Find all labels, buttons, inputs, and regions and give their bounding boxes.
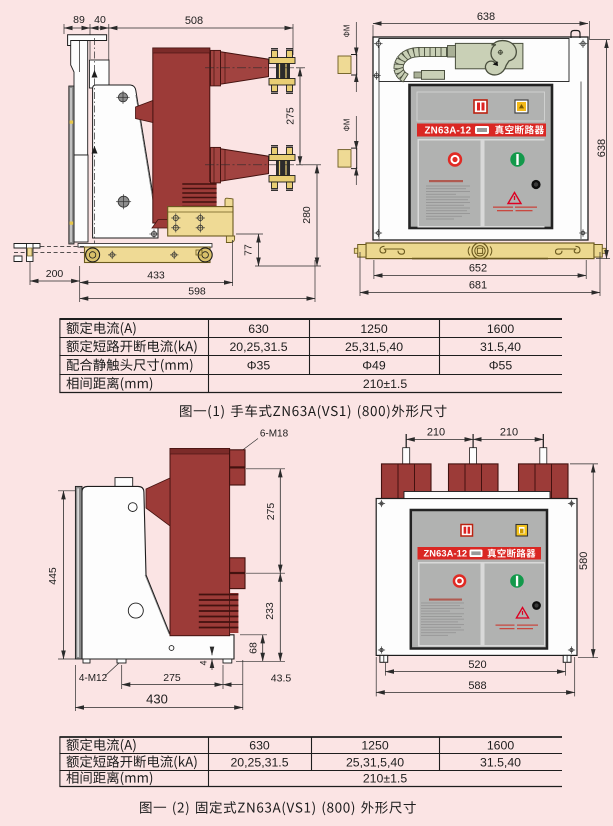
svg-text:445: 445	[47, 567, 59, 585]
svg-text:68: 68	[248, 642, 260, 654]
svg-text:Φ55: Φ55	[489, 359, 513, 373]
svg-text:681: 681	[469, 280, 487, 292]
svg-text:20,25,31.5: 20,25,31.5	[230, 755, 288, 769]
svg-text:508: 508	[185, 15, 203, 27]
svg-text:89: 89	[73, 14, 85, 26]
svg-text:43.5: 43.5	[271, 673, 292, 685]
svg-text:31.5,40: 31.5,40	[480, 755, 521, 769]
svg-text:20,25,31.5: 20,25,31.5	[229, 340, 287, 354]
svg-text:1600: 1600	[487, 739, 515, 753]
svg-text:77: 77	[243, 244, 255, 256]
svg-text:1600: 1600	[487, 322, 515, 336]
svg-text:520: 520	[468, 659, 486, 671]
svg-text:200: 200	[46, 268, 64, 280]
svg-text:280: 280	[301, 206, 313, 224]
svg-text:ZN63A-12: ZN63A-12	[425, 125, 472, 136]
svg-text:433: 433	[147, 270, 165, 282]
svg-text:Φ49: Φ49	[362, 359, 386, 373]
svg-text:6-M18: 6-M18	[260, 429, 289, 440]
svg-text:ZN63A-12: ZN63A-12	[424, 549, 468, 559]
svg-text:275: 275	[265, 503, 277, 521]
svg-text:275: 275	[285, 107, 297, 125]
svg-text:233: 233	[264, 602, 276, 620]
svg-text:210±1.5: 210±1.5	[363, 771, 408, 785]
svg-text:1250: 1250	[360, 322, 388, 336]
svg-text:210: 210	[500, 427, 518, 439]
svg-text:638: 638	[477, 11, 495, 23]
svg-text:ΦM: ΦM	[343, 25, 352, 38]
svg-text:588: 588	[468, 680, 486, 692]
svg-text:4-M12: 4-M12	[79, 673, 108, 684]
svg-text:210: 210	[427, 427, 445, 439]
svg-text:31.5,40: 31.5,40	[480, 340, 521, 354]
svg-text:275: 275	[163, 672, 181, 684]
svg-text:Φ35: Φ35	[247, 359, 271, 373]
svg-text:630: 630	[249, 739, 270, 753]
svg-text:1250: 1250	[361, 739, 389, 753]
svg-text:4: 4	[199, 660, 209, 665]
svg-text:40: 40	[94, 14, 106, 26]
svg-text:25,31,5,40: 25,31,5,40	[345, 340, 403, 354]
svg-text:ΦM: ΦM	[343, 119, 352, 132]
svg-text:430: 430	[146, 692, 168, 707]
svg-text:25,31,5,40: 25,31,5,40	[346, 755, 404, 769]
svg-text:652: 652	[469, 263, 487, 275]
svg-text:598: 598	[188, 286, 206, 298]
svg-text:580: 580	[578, 552, 590, 570]
svg-text:630: 630	[248, 322, 269, 336]
svg-text:210±1.5: 210±1.5	[363, 377, 408, 391]
